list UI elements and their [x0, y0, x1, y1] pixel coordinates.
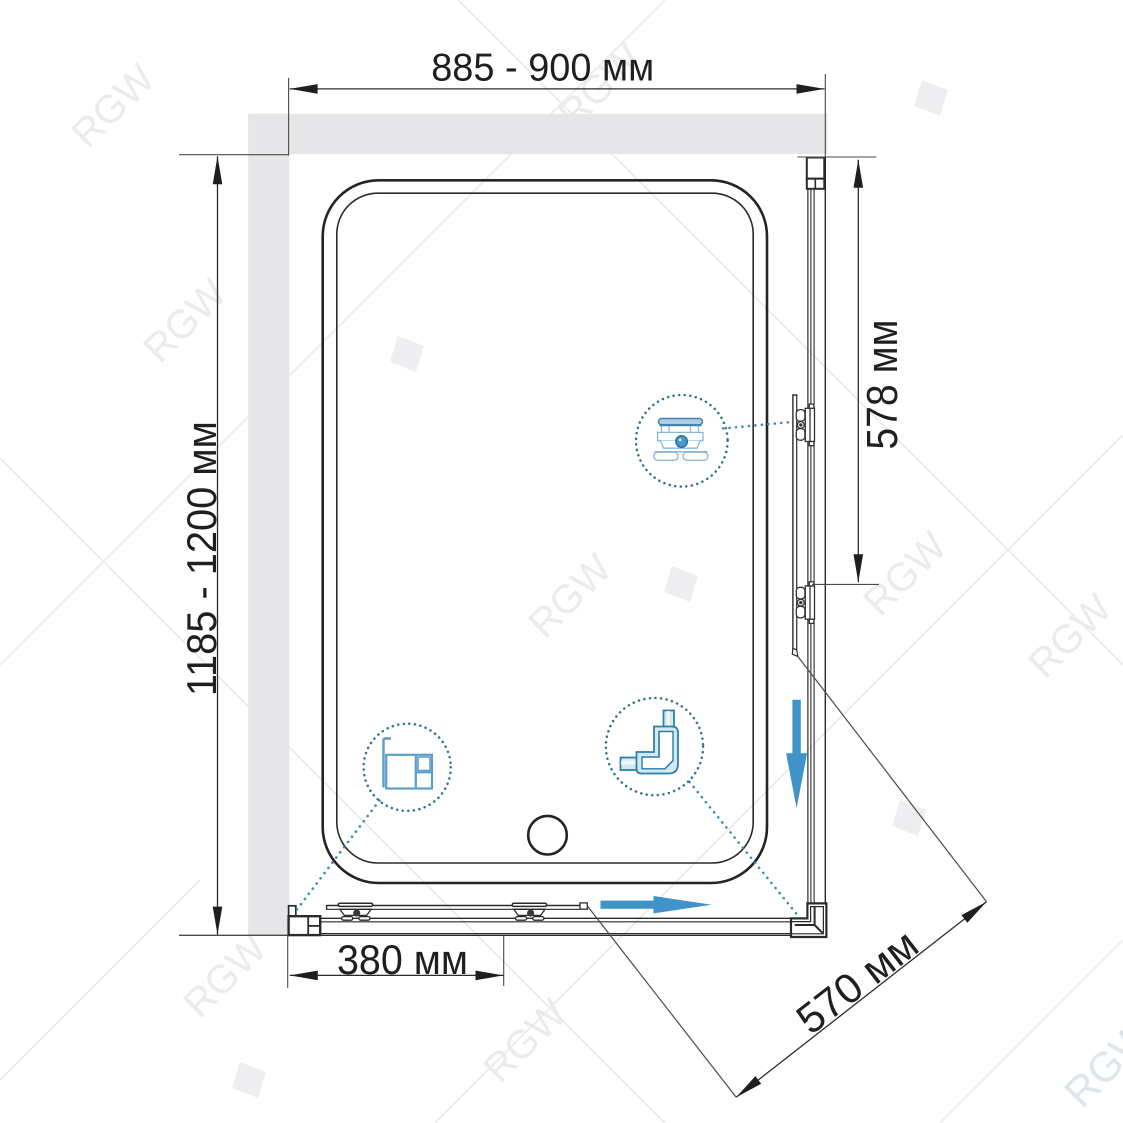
svg-text:1185 - 1200 мм: 1185 - 1200 мм — [178, 421, 225, 696]
svg-text:578 мм: 578 мм — [858, 320, 907, 450]
svg-text:380 мм: 380 мм — [337, 936, 468, 983]
svg-text:885 - 900 мм: 885 - 900 мм — [431, 47, 654, 90]
